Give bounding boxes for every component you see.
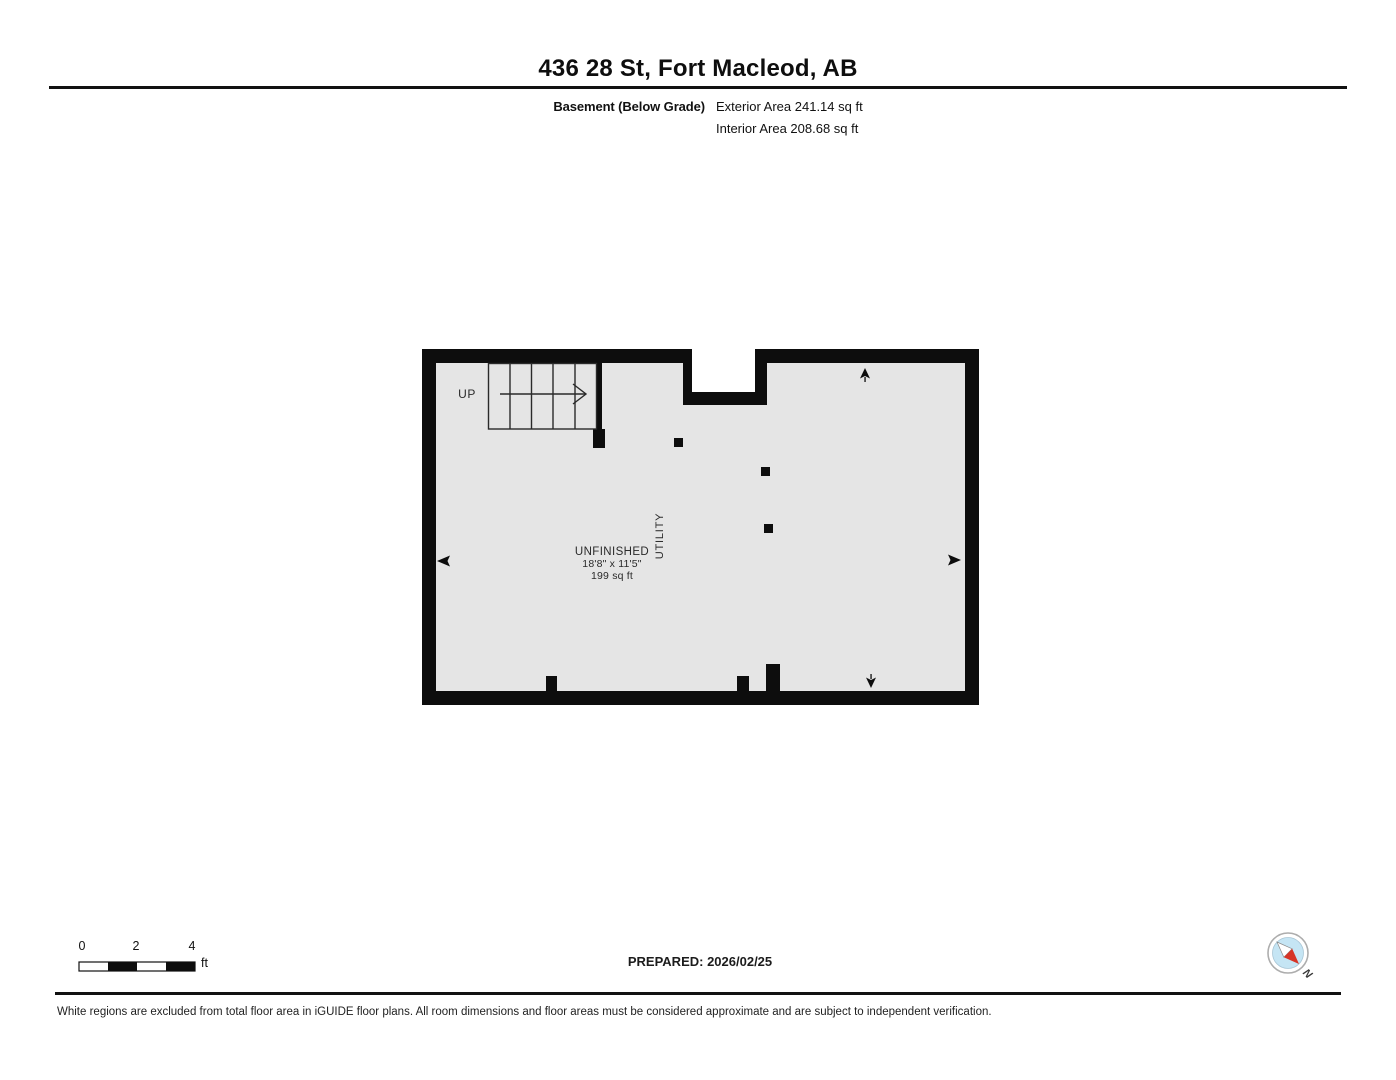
footer-divider: [55, 992, 1341, 995]
scale-bar: [79, 962, 195, 971]
floor-plan: N: [0, 0, 1396, 1080]
top-notch-void: [692, 345, 755, 392]
prepared-date: PREPARED: 2026/02/25: [550, 954, 850, 969]
stairs-up-label: UP: [451, 387, 483, 401]
post: [761, 467, 770, 476]
compass-north-label: N: [1300, 967, 1315, 982]
floor-area: [436, 363, 965, 691]
scale-tick-4: 4: [182, 939, 202, 953]
scale-tick-2: 2: [126, 939, 146, 953]
post: [674, 438, 683, 447]
utility-room-label: UTILITY: [654, 501, 668, 571]
post: [764, 524, 773, 533]
disclaimer-text: White regions are excluded from total fl…: [57, 1006, 1157, 1018]
room-area: 199 sq ft: [542, 570, 682, 582]
scale-tick-0: 0: [72, 939, 92, 953]
scale-unit-label: ft: [201, 956, 208, 970]
compass-icon: N: [1268, 933, 1315, 982]
